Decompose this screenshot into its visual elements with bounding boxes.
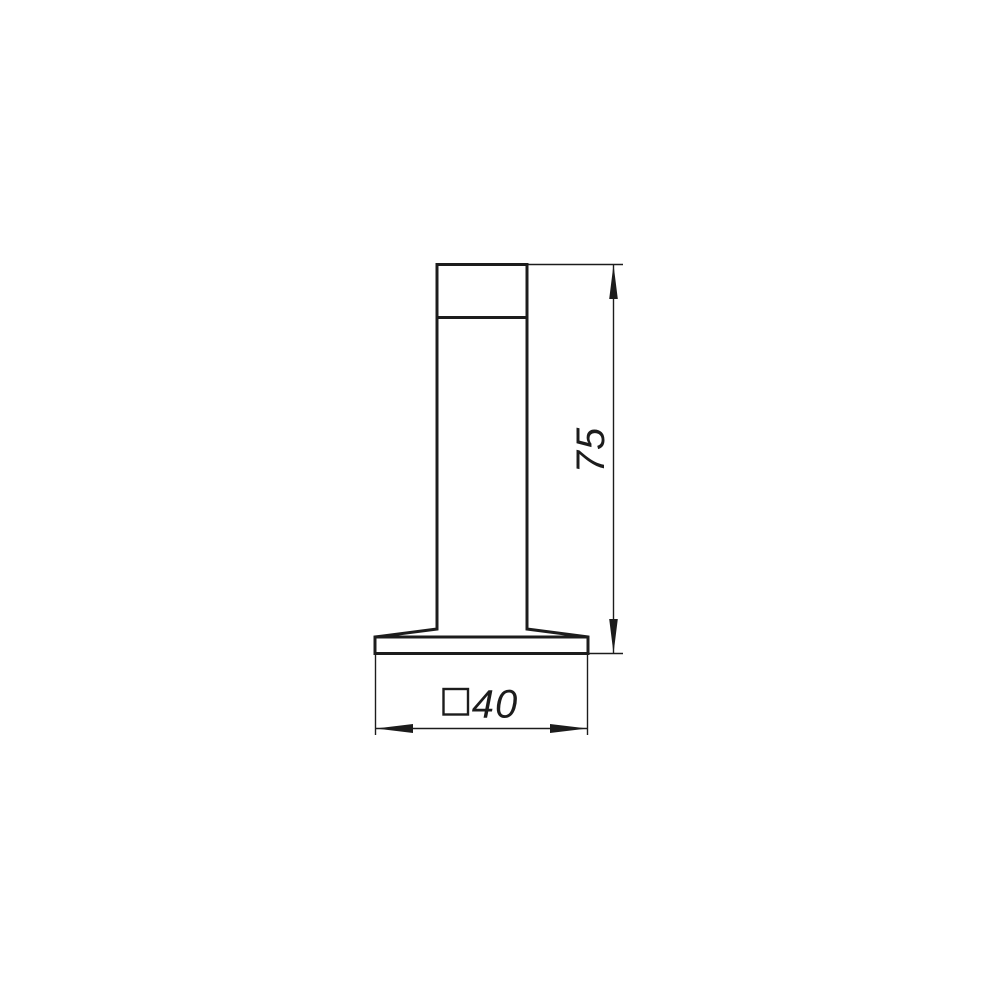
- height-dimension-label: 75: [569, 427, 613, 474]
- arrow-down-icon: [609, 619, 618, 654]
- arrow-up-icon: [609, 265, 618, 300]
- square-section-symbol-icon: [444, 689, 469, 715]
- drawing-stroke-root: 75 40: [375, 265, 623, 736]
- height-dimension: 75: [527, 265, 623, 654]
- drawing-canvas: 75 40: [0, 0, 1000, 1000]
- width-dimension: 40: [376, 654, 588, 736]
- width-dimension-label: 40: [472, 683, 519, 727]
- doorstop-outline-group: [375, 265, 588, 654]
- drawing-fill-root: 75 40: [375, 265, 623, 736]
- technical-drawing: 75 40: [0, 0, 1000, 1000]
- arrow-left-icon: [376, 724, 414, 733]
- arrow-right-icon: [550, 724, 588, 733]
- doorstop-body-outline: [375, 265, 588, 654]
